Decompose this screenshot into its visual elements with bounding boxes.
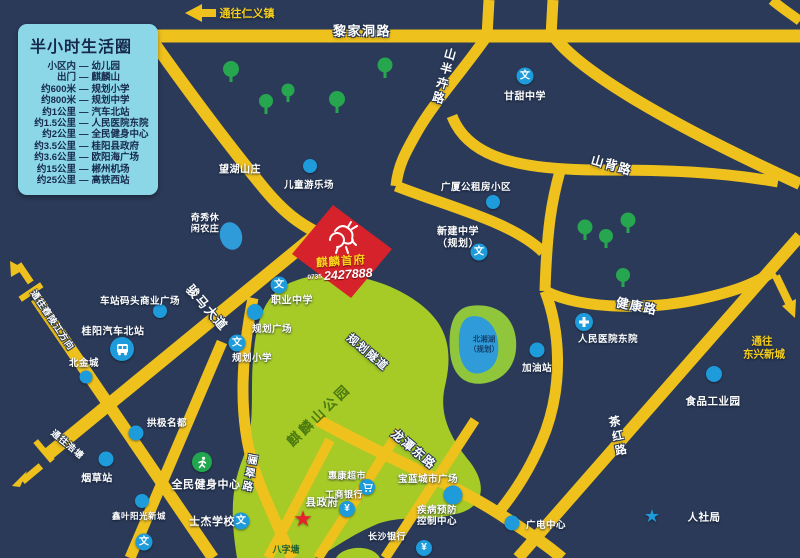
poi-dot-guihua-guangchang xyxy=(247,304,263,320)
school-icon-southwest: 文 xyxy=(136,534,153,551)
bank-icon-gongshang: ¥ xyxy=(339,501,355,517)
poi-beijincheng: 北金城 xyxy=(69,355,99,369)
road-stub-north2 xyxy=(551,0,553,36)
poi-jiayou: 加油站 xyxy=(522,360,552,374)
legend-item: 约25公里—高铁西站 xyxy=(18,175,158,186)
runner-icon xyxy=(196,456,209,469)
poi-guihua-guangchang: 规划广场 xyxy=(252,321,292,335)
poi-xinye: 鑫叶阳光新城 xyxy=(112,510,166,522)
poi-dot-gongji xyxy=(129,426,144,441)
road-vertical-east xyxy=(545,171,560,291)
pond-label: 八字塘 xyxy=(272,543,299,556)
poi-dot-guangsha xyxy=(486,195,500,209)
legend-item: 约1公里—汽车北站 xyxy=(18,107,158,118)
poi-wanghu: 望湖山庄 xyxy=(219,161,261,176)
phone-prefix: 0735 xyxy=(307,273,322,281)
poi-dot-beijincheng xyxy=(80,371,93,384)
road-corner-ne xyxy=(772,0,800,21)
legend-list: 小区内—幼儿园出门—麒麟山约600米—规划小学约800米—规划中学约1公里—汽车… xyxy=(18,61,158,186)
pond-green-shape xyxy=(336,548,380,558)
poi-guangsha: 广厦公租房小区 xyxy=(441,179,511,193)
poi-quanmin: 全民健身中心 xyxy=(172,476,241,492)
legend-title: 半小时生活圈 xyxy=(30,33,158,57)
poi-baolan: 宝蓝城市广场 xyxy=(398,471,458,485)
poi-guangdian: 广电中心 xyxy=(526,517,566,531)
cross-icon xyxy=(578,316,590,328)
poi-qixiu-2: 闲农庄 xyxy=(191,222,220,235)
poi-dot-yancao xyxy=(99,452,114,467)
road-sweep-ne xyxy=(551,32,800,184)
lake-note: （规划） xyxy=(469,345,499,354)
lake-label: 北湘湖 xyxy=(473,335,496,344)
legend-item: 出门—麒麟山 xyxy=(18,72,158,83)
poi-gongji: 拱极名都 xyxy=(147,415,187,429)
chongling-arrow-tail xyxy=(16,262,34,284)
school-icon-guihua-xiaoxue: 文 xyxy=(229,335,246,352)
poi-shipin: 食品工业园 xyxy=(686,394,741,409)
poi-dot-xinye xyxy=(135,494,149,508)
school-icon-shijie: 文 xyxy=(233,513,250,530)
legend-item: 约800米—规划中学 xyxy=(18,95,158,106)
poi-changsha: 长沙银行 xyxy=(368,530,406,543)
poi-yancao: 烟草站 xyxy=(81,470,113,485)
poi-gongshang: 工商银行 xyxy=(325,488,363,501)
poi-ertong: 儿童游乐场 xyxy=(284,177,334,191)
road-dongxing-spur xyxy=(776,276,789,303)
renyi-arrow-icon xyxy=(185,4,216,22)
bank-icon-changsha: ¥ xyxy=(416,540,432,556)
poi-huikang: 惠康超市 xyxy=(328,469,366,482)
haotang-arrow-tail xyxy=(20,463,43,484)
fitness-icon xyxy=(192,452,212,472)
legend-item: 约3.6公里—欧阳海广场 xyxy=(18,152,158,163)
poi-renshe: 人社局 xyxy=(688,510,721,525)
direction-renyi: 通往仁义镇 xyxy=(220,5,275,21)
poi-qichebeizhan: 桂阳汽车北站 xyxy=(82,323,145,338)
poi-xinjian-2: （规划） xyxy=(437,235,479,250)
poi-dot-guangdian xyxy=(505,516,520,531)
poi-dot-ertong xyxy=(303,159,317,173)
map-canvas: 半小时生活圈 小区内—幼儿园出门—麒麟山约600米—规划小学约800米—规划中学… xyxy=(0,0,800,558)
direction-dongxing-2: 东兴新城 xyxy=(743,347,785,362)
legend-item: 约600米—规划小学 xyxy=(18,84,158,95)
road-stub-north1 xyxy=(487,0,489,36)
legend-panel: 半小时生活圈 小区内—幼儿园出门—麒麟山约600米—规划小学约800米—规划中学… xyxy=(18,24,158,195)
poi-jibing-2: 控制中心 xyxy=(417,513,457,527)
poi-dot-shipin xyxy=(706,366,722,382)
farm-pond xyxy=(217,220,246,253)
bus-icon xyxy=(115,342,130,357)
poi-dot-jiayou xyxy=(530,343,545,358)
cart-icon xyxy=(362,482,373,493)
legend-item: 约15公里—郴州机场 xyxy=(18,164,158,175)
poi-zhiye: 职业中学 xyxy=(271,292,313,307)
poi-shijie: 士杰学校 xyxy=(189,513,235,529)
renshe-star-icon: ★ xyxy=(644,507,660,525)
hospital-icon xyxy=(575,313,593,331)
poi-renmin: 人民医院东院 xyxy=(578,331,638,345)
school-icon-gantian: 文 xyxy=(517,68,534,85)
poi-chezhan: 车站码头商业广场 xyxy=(100,293,180,307)
legend-item: 小区内—幼儿园 xyxy=(18,61,158,72)
legend-item: 约3.5公里—桂阳县政府 xyxy=(18,141,158,152)
poi-gantian: 甘甜中学 xyxy=(504,88,546,103)
county-gov-star-icon: ★ xyxy=(293,508,313,530)
legend-item: 约2公里—全民健身中心 xyxy=(18,129,158,140)
poi-guihua-xiaoxue: 规划小学 xyxy=(232,350,272,364)
bus-station-icon xyxy=(110,337,134,361)
road-label-lijiadong: 黎家洞路 xyxy=(333,21,391,40)
legend-item: 约1.5公里—人民医院东院 xyxy=(18,118,158,129)
